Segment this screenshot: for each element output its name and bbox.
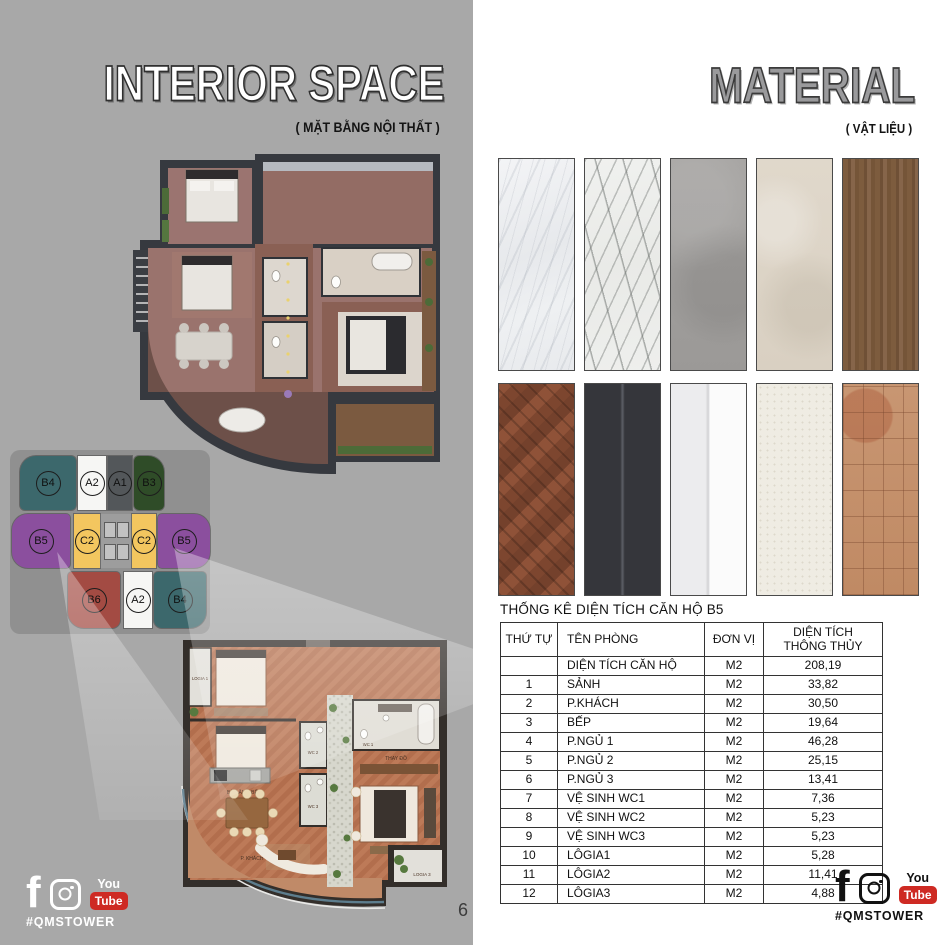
key-plan-unit-a2-bottom: A2 [124,572,152,628]
table-cell: SẢNH [558,676,705,695]
table-cell: M2 [705,847,764,866]
youtube-you-label: You [906,872,929,885]
table-cell: 25,15 [764,752,883,771]
table-cell: 33,82 [764,676,883,695]
key-plan-unit-c2-right: C2 [132,514,156,568]
material-swatch-beige-travertine [756,158,833,371]
table-cell: M2 [705,695,764,714]
table-cell: 7,36 [764,790,883,809]
table-cell: 10 [501,847,558,866]
facebook-icon[interactable]: f [26,876,41,910]
table-row: 8VỆ SINH WC2M25,23 [501,809,883,828]
social-links-left: f You Tube #QMSTOWER [26,876,128,929]
column-header: DIỆN TÍCHTHÔNG THỦY [764,623,883,657]
key-plan-unit-b3: B3 [134,456,164,510]
table-cell: 8 [501,809,558,828]
material-swatch-cream-stucco [756,383,833,596]
unit-label: A2 [126,588,151,613]
table-cell: 1 [501,676,558,695]
column-header: TÊN PHÒNG [558,623,705,657]
facebook-icon[interactable]: f [835,870,850,904]
material-swatch-white-gloss-panel [670,383,747,596]
table-cell: BẾP [558,714,705,733]
key-plan-unit-c2-left: C2 [74,514,100,568]
table-cell: DIỆN TÍCH CĂN HỘ [558,657,705,676]
table-cell: LÔGIA2 [558,866,705,885]
lower-floor-plan: LOGIA 1 BÀN ĂN + BẾP P. KHÁCH [156,638,476,915]
lift-shaft [117,544,129,560]
key-plan-unit-a2-top: A2 [78,456,106,510]
room-label-logia1: LOGIA 1 [192,676,209,681]
table-row: 2P.KHÁCHM230,50 [501,695,883,714]
interior-space-title: INTERIOR SPACE [104,58,445,108]
table-cell: M2 [705,752,764,771]
key-plan-unit-b4-bottom: B4 [154,572,206,628]
material-swatch-charcoal-panel [584,383,661,596]
table-cell: M2 [705,733,764,752]
material-swatch-terracotta-mosaic [842,383,919,596]
upper-floor-plan [130,152,458,482]
room-label-living: P. KHÁCH [241,855,264,862]
table-cell: 19,64 [764,714,883,733]
unit-label: C2 [132,529,156,554]
table-cell: 12 [501,885,558,904]
column-header: ĐƠN VỊ [705,623,764,657]
table-cell: M2 [705,676,764,695]
table-cell: 46,28 [764,733,883,752]
unit-label: B3 [137,471,162,496]
table-row: 4P.NGỦ 1M246,28 [501,733,883,752]
unit-label: A2 [80,471,105,496]
lift-shaft [117,522,129,538]
youtube-you-label: You [97,878,120,891]
table-row: 12LÔGIA3M24,88 [501,885,883,904]
room-label-wc3: WC 3 [308,804,319,809]
table-cell: 9 [501,828,558,847]
table-cell: P.NGỦ 2 [558,752,705,771]
table-cell: 6 [501,771,558,790]
area-table: THỨ TỰTÊN PHÒNGĐƠN VỊDIỆN TÍCHTHÔNG THỦY… [500,622,883,904]
table-cell: M2 [705,828,764,847]
material-swatch-white-marble-veined [584,158,661,371]
table-row: 11LÔGIA2M211,41 [501,866,883,885]
instagram-icon[interactable] [50,879,81,910]
hashtag-label: #QMSTOWER [26,915,115,929]
table-row: 9VỆ SINH WC3M25,23 [501,828,883,847]
table-cell: VỆ SINH WC2 [558,809,705,828]
room-label-logia3: LOGIA 3 [413,872,431,877]
unit-label: B4 [36,471,61,496]
table-cell: 5,28 [764,847,883,866]
unit-label: B5 [29,529,54,554]
table-cell: 5,23 [764,809,883,828]
material-title: MATERIAL [709,60,915,110]
key-plan-unit-b5-left: B5 [12,514,70,568]
table-cell: 5,23 [764,828,883,847]
table-cell: 2 [501,695,558,714]
social-links-right: f You Tube #QMSTOWER [835,870,937,923]
table-cell: P.KHÁCH [558,695,705,714]
unit-label: B5 [172,529,197,554]
unit-label: A1 [108,471,132,496]
table-row: 1SẢNHM233,82 [501,676,883,695]
material-swatch-white-marble-light [498,158,575,371]
table-row: DIỆN TÍCH CĂN HỘM2208,19 [501,657,883,676]
table-cell: M2 [705,771,764,790]
unit-label: B4 [168,588,193,613]
area-table-body: DIỆN TÍCH CĂN HỘM2208,191SẢNHM233,822P.K… [501,657,883,904]
interior-space-subtitle: ( MẶT BẰNG NỘI THẤT ) [296,120,440,136]
room-label-closet: THAY ĐỒ [385,755,407,762]
youtube-tube-badge: Tube [899,886,937,904]
table-cell: M2 [705,790,764,809]
material-swatch-gray-concrete [670,158,747,371]
table-row: 7VỆ SINH WC1M27,36 [501,790,883,809]
table-cell: 208,19 [764,657,883,676]
table-cell [501,657,558,676]
room-label-wc2: WC 2 [308,750,319,755]
area-table-title: THỐNG KÊ DIỆN TÍCH CĂN HỘ B5 [500,602,724,617]
table-cell: P.NGỦ 3 [558,771,705,790]
table-cell: M2 [705,866,764,885]
table-cell: P.NGỦ 1 [558,733,705,752]
page-number: 6 [458,900,468,921]
table-cell: 5 [501,752,558,771]
table-cell: VỆ SINH WC3 [558,828,705,847]
table-cell: 11 [501,866,558,885]
area-table-header: THỨ TỰTÊN PHÒNGĐƠN VỊDIỆN TÍCHTHÔNG THỦY [501,623,883,657]
hashtag-label: #QMSTOWER [835,909,924,923]
table-cell: 30,50 [764,695,883,714]
key-plan-unit-b6: B6 [68,572,120,628]
room-label-wc1: WC 1 [363,742,374,747]
lift-shaft [104,544,116,560]
brochure-page: INTERIOR SPACE ( MẶT BẰNG NỘI THẤT ) [0,0,945,945]
table-row: 10LÔGIA1M25,28 [501,847,883,866]
table-cell: 13,41 [764,771,883,790]
unit-label: C2 [75,529,100,554]
table-cell: LÔGIA3 [558,885,705,904]
table-cell: 7 [501,790,558,809]
table-cell: VỆ SINH WC1 [558,790,705,809]
key-plan-unit-b4-top: B4 [20,456,76,510]
table-cell: M2 [705,714,764,733]
key-plan-unit-a1: A1 [108,456,132,510]
table-cell: 3 [501,714,558,733]
table-row: 3BẾPM219,64 [501,714,883,733]
key-plan-unit-b5-right: B5 [158,514,210,568]
material-subtitle: ( VẬT LIỆU ) [846,122,912,137]
material-swatch-walnut-wood [842,158,919,371]
youtube-icon[interactable]: You Tube [90,878,128,911]
unit-label: B6 [82,588,107,613]
table-row: 6P.NGỦ 3M213,41 [501,771,883,790]
column-header: THỨ TỰ [501,623,558,657]
lift-shaft [104,522,116,538]
material-swatch-herringbone-parquet [498,383,575,596]
youtube-tube-badge: Tube [90,892,128,910]
table-cell: 4 [501,733,558,752]
youtube-icon[interactable]: You Tube [899,872,937,905]
table-cell: M2 [705,885,764,904]
key-plan: B4 A2 A1 B3 B5 C2 C2 B5 B6 A2 B4 [8,448,212,640]
instagram-icon[interactable] [859,873,890,904]
table-cell: LÔGIA1 [558,847,705,866]
table-cell: M2 [705,809,764,828]
key-plan-corridor [100,514,132,568]
table-cell: M2 [705,657,764,676]
materials-grid [498,158,919,596]
table-row: 5P.NGỦ 2M225,15 [501,752,883,771]
